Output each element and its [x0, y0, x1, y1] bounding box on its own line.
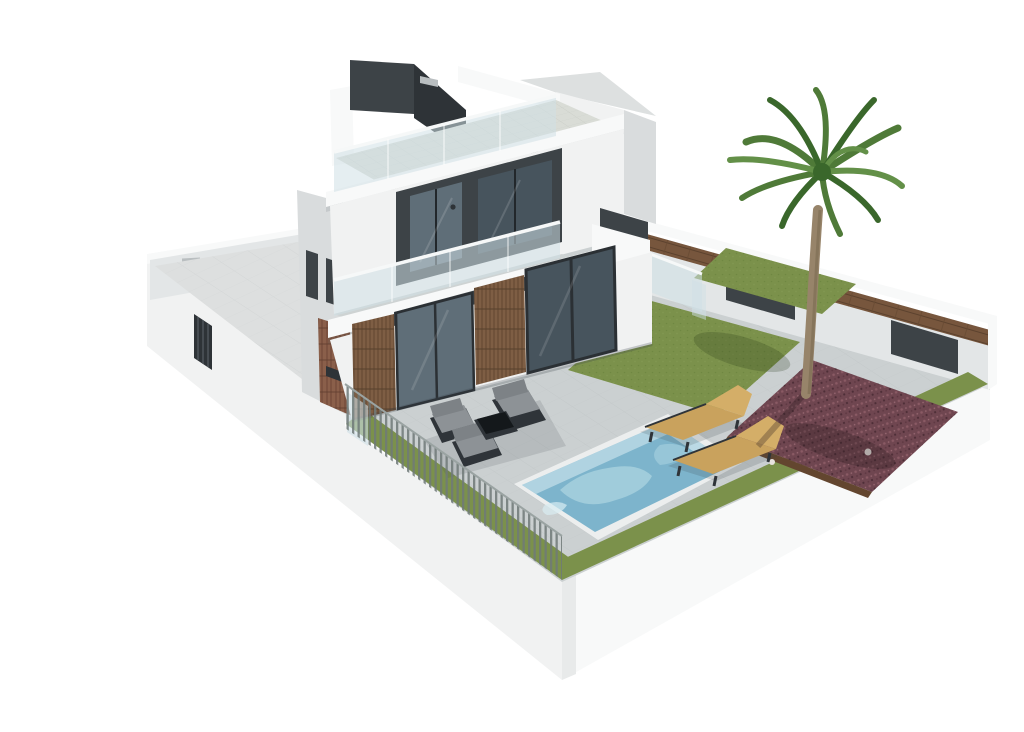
- villa-render: [0, 0, 1024, 732]
- left-window-slit: [306, 250, 318, 300]
- render-canvas: [0, 0, 1024, 732]
- upper-volume-side: [624, 110, 656, 224]
- bulkhead-wall-front: [350, 60, 414, 114]
- base-corner-shade: [562, 572, 576, 680]
- entrance-column-wood: [474, 275, 526, 385]
- facade-lamp: [450, 204, 455, 209]
- wall-end-cap: [988, 316, 997, 390]
- shower-glass: [692, 280, 706, 320]
